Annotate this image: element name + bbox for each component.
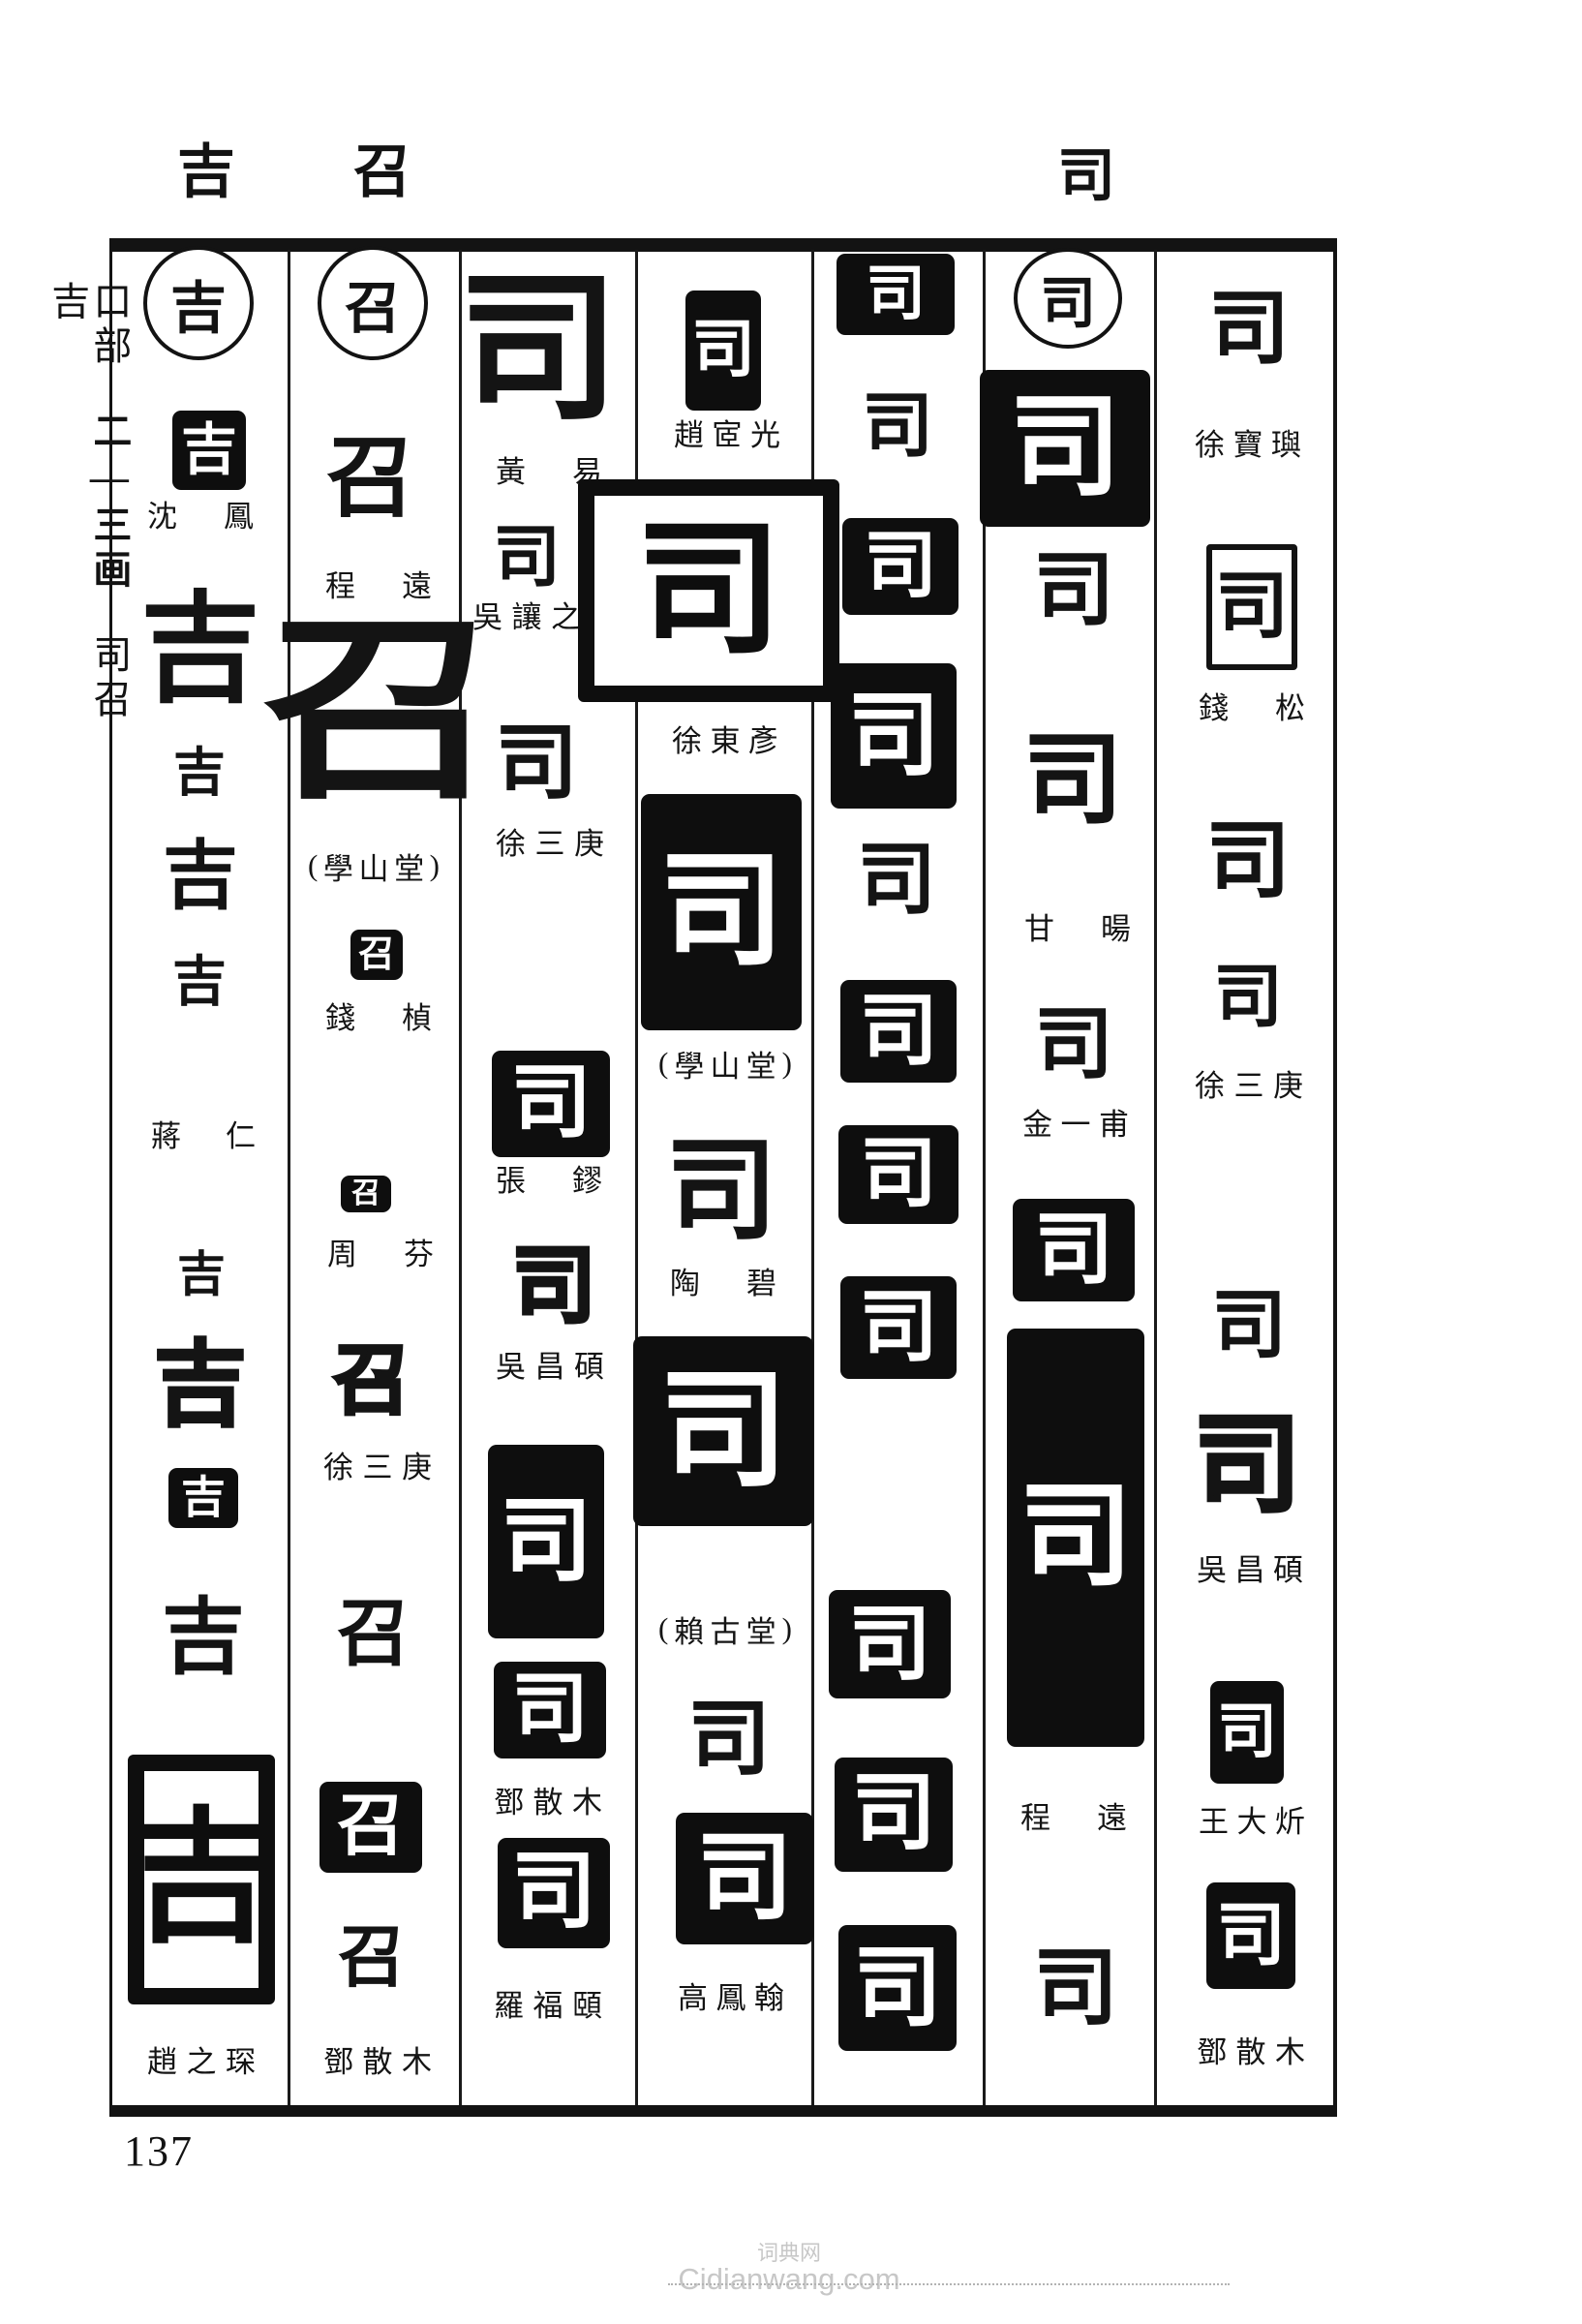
artist-name-char: 趙 <box>147 2037 177 2081</box>
seal-impression: 司 <box>1181 1400 1313 1532</box>
artist-name-char: 鳳 <box>716 1973 746 2017</box>
artist-name-char: 琛 <box>226 2037 256 2081</box>
column-border <box>1154 250 1157 2105</box>
artist-name-label: (學山堂) <box>658 1046 792 1081</box>
artist-name-char: 一 <box>1061 1100 1091 1144</box>
artist-name-char: 福 <box>533 1981 563 2025</box>
seal-impression: 司 <box>494 1662 606 1758</box>
artist-name-char: 甫 <box>1099 1100 1129 1144</box>
artist-name-char: 鏐 <box>572 1156 602 1200</box>
artist-name-char: 鳳 <box>224 492 254 535</box>
artist-name-char: 錢 <box>325 994 355 1037</box>
artist-name-label: 高鳳翰 <box>678 1977 784 2012</box>
seal-impression: 司 <box>443 254 633 447</box>
headword-marker: 召 <box>318 246 428 360</box>
artist-name-char: 古 <box>710 1607 740 1651</box>
seal-impression: 吉 <box>145 953 254 1013</box>
watermark: 词典网 Cidianwang.com <box>678 2243 899 2296</box>
artist-name-char: 大 <box>1237 1797 1267 1841</box>
page-header-character-zhao: 召 <box>353 143 411 201</box>
watermark-site-url: Cidianwang.com <box>678 2264 899 2296</box>
artist-name-char: 徐 <box>1195 420 1225 464</box>
watermark-site-name: 词典网 <box>678 2243 899 2264</box>
artist-name-label: 吳昌碩 <box>496 1346 604 1381</box>
seal-impression: 吉 <box>139 835 261 918</box>
artist-name-char: 碩 <box>574 1342 604 1386</box>
artist-name-label: 張鏐 <box>496 1160 602 1195</box>
artist-name-label: 鄧散木 <box>323 2041 432 2076</box>
artist-name-char: ) <box>782 1046 792 1081</box>
seal-impression: 司 <box>633 1336 813 1526</box>
seal-impression: 司 <box>641 794 802 1030</box>
seal-impression: 司 <box>840 980 957 1083</box>
artist-name-label: 甘暘 <box>1024 908 1131 943</box>
artist-name-label: 王大炘 <box>1199 1801 1305 1836</box>
seal-impression: 司 <box>1206 544 1297 670</box>
artist-name-char: 甘 <box>1024 904 1054 948</box>
artist-name-char: 蔣 <box>151 1112 181 1155</box>
seal-impression: 司 <box>1017 666 1129 897</box>
artist-name-char: 周 <box>327 1230 357 1273</box>
seal-impression: 司 <box>1013 1199 1135 1301</box>
artist-name-label: 金一甫 <box>1022 1104 1129 1139</box>
seal-impression: 召 <box>350 930 403 980</box>
artist-name-char: 木 <box>402 2037 432 2081</box>
artist-name-char: 吳 <box>1197 1545 1227 1589</box>
artist-name-label: 徐三庚 <box>323 1447 432 1482</box>
seal-impression: 司 <box>829 1590 951 1698</box>
margin-radical: 口部 <box>87 281 131 370</box>
artist-name-char: 學 <box>323 844 353 888</box>
artist-name-char: 堂 <box>394 844 424 888</box>
artist-name-char: 頤 <box>572 1981 602 2025</box>
artist-name-char: 趙 <box>674 411 704 454</box>
artist-name-char: 光 <box>750 411 780 454</box>
artist-name-char: 木 <box>572 1778 602 1821</box>
artist-name-label: 周芬 <box>327 1234 434 1269</box>
artist-name-char: ) <box>430 848 440 883</box>
seal-impression: 司 <box>840 1276 957 1379</box>
seal-impression: 吉 <box>134 1334 267 1437</box>
seal-impression: 司 <box>835 1758 953 1872</box>
seal-impression: 司 <box>837 254 955 335</box>
artist-name-char: 之 <box>187 2037 217 2081</box>
seal-impression: 司 <box>1212 949 1284 1046</box>
page: 吉 召 司 口部二—三画司召吉 137 词典网 Cidianwang.com 吉… <box>0 0 1582 2324</box>
artist-name-char: 王 <box>1199 1797 1229 1841</box>
artist-name-char: 暘 <box>1101 904 1131 948</box>
artist-name-label: 程遠 <box>1020 1797 1127 1832</box>
seal-impression: 召 <box>333 405 409 552</box>
artist-name-char: 散 <box>533 1778 563 1821</box>
artist-name-char: 高 <box>678 1973 708 2017</box>
artist-name-char: 宧 <box>713 411 743 454</box>
artist-name-char: 沈 <box>147 492 177 535</box>
seal-impression: 司 <box>637 1131 806 1253</box>
artist-name-char: 徐 <box>323 1443 353 1486</box>
seal-impression: 司 <box>682 1693 776 1786</box>
artist-name-char: 徐 <box>672 717 702 760</box>
artist-name-char: 庚 <box>1273 1061 1303 1105</box>
artist-name-label: 錢松 <box>1199 688 1305 722</box>
artist-name-char: 山 <box>710 1042 740 1086</box>
artist-name-char: 張 <box>496 1156 526 1200</box>
artist-name-label: 吳昌碩 <box>1197 1549 1303 1584</box>
seal-impression: 召 <box>341 1547 407 1722</box>
artist-name-label: 趙之琛 <box>147 2041 256 2076</box>
artist-name-label: 徐東彥 <box>672 720 778 755</box>
artist-name-label: 徐寶璵 <box>1195 424 1301 459</box>
artist-name-char: 楨 <box>402 994 432 1037</box>
artist-name-char: 彥 <box>748 717 778 760</box>
artist-name-char: 錢 <box>1199 684 1229 727</box>
seal-impression: 吉 <box>128 1755 275 2004</box>
seal-impression: 司 <box>1210 1681 1284 1784</box>
seal-impression: 司 <box>676 1813 813 1944</box>
artist-name-char: 松 <box>1275 684 1305 727</box>
seal-impression: 司 <box>1206 1282 1292 1369</box>
artist-name-char: 木 <box>1275 2028 1305 2071</box>
column-border <box>459 250 462 2105</box>
artist-name-char: 堂 <box>746 1042 776 1086</box>
artist-name-label: 徐三庚 <box>1195 1065 1303 1100</box>
seal-impression: 司 <box>838 1125 958 1224</box>
artist-name-char: 璵 <box>1271 420 1301 464</box>
seal-impression: 召 <box>226 593 537 833</box>
artist-name-char: 三 <box>535 819 565 863</box>
seal-impression: 司 <box>1007 1329 1144 1747</box>
artist-name-char: 翰 <box>754 1973 784 2017</box>
headword-marker: 司 <box>1014 248 1122 349</box>
scan-noise-artifact <box>668 2283 1230 2287</box>
artist-name-char: 庚 <box>574 819 604 863</box>
artist-name-char: 散 <box>1236 2028 1266 2071</box>
seal-impression: 司 <box>498 1239 610 1336</box>
artist-name-char: 徐 <box>1195 1061 1225 1105</box>
artist-name-label: (賴古堂) <box>658 1611 792 1646</box>
artist-name-char: 芬 <box>404 1230 434 1273</box>
seal-impression: 司 <box>860 385 935 469</box>
seal-impression: 召 <box>327 1340 416 1423</box>
seal-impression: 召 <box>319 1782 422 1873</box>
artist-name-char: 三 <box>363 1443 393 1486</box>
artist-name-char: 仁 <box>226 1112 256 1155</box>
artist-name-char: 東 <box>711 717 741 760</box>
artist-name-char: 金 <box>1022 1100 1052 1144</box>
artist-name-char: 黃 <box>496 447 526 491</box>
artist-name-label: 鄧散木 <box>494 1782 602 1817</box>
artist-name-char: 堂 <box>746 1607 776 1651</box>
seal-impression: 司 <box>578 479 839 702</box>
artist-name-label: 羅福頤 <box>494 1985 602 2020</box>
artist-name-char: 昌 <box>1235 1545 1265 1589</box>
artist-name-char: 遠 <box>1097 1793 1127 1837</box>
page-header-character-si: 司 <box>1057 147 1115 205</box>
seal-impression: 司 <box>831 663 957 809</box>
seal-impression: 司 <box>1024 546 1123 637</box>
seal-impression: 司 <box>838 1925 957 2051</box>
artist-name-char: 昌 <box>535 1342 565 1386</box>
seal-impression: 吉 <box>159 1559 248 1716</box>
artist-name-char: 鄧 <box>494 1778 524 1821</box>
seal-impression: 司 <box>492 1051 610 1157</box>
page-number: 137 <box>124 2126 194 2176</box>
artist-name-label: 錢楨 <box>325 997 432 1032</box>
seal-impression: 司 <box>1015 1001 1133 1088</box>
margin-section-label: 口部二—三画司召吉 <box>46 281 130 746</box>
artist-name-char: ( <box>308 848 318 883</box>
artist-name-char: 炘 <box>1275 1797 1305 1841</box>
seal-impression: 司 <box>1204 260 1293 401</box>
seal-impression: 吉 <box>168 1468 238 1528</box>
artist-name-char: 寶 <box>1233 420 1263 464</box>
artist-name-label: (學山堂) <box>308 848 440 883</box>
seal-impression: 司 <box>1028 1921 1123 2059</box>
artist-name-char: 陶 <box>670 1259 700 1302</box>
artist-name-label: 沈鳳 <box>147 496 254 531</box>
artist-name-char: 吳 <box>496 1342 526 1386</box>
artist-name-char: 程 <box>1020 1793 1050 1837</box>
seal-impression: 召 <box>337 1917 407 2001</box>
seal-impression: 司 <box>463 521 591 596</box>
seal-impression: 司 <box>1206 1882 1295 1989</box>
artist-name-label: 趙宧光 <box>674 414 780 449</box>
seal-impression: 司 <box>842 837 951 924</box>
seal-impression: 司 <box>685 290 761 411</box>
artist-name-char: ) <box>782 1611 792 1646</box>
seal-impression: 司 <box>498 1838 610 1948</box>
artist-name-char: 散 <box>363 2037 393 2081</box>
page-header-character-ji: 吉 <box>177 143 235 201</box>
artist-name-char: 山 <box>358 844 388 888</box>
artist-name-char: 賴 <box>674 1607 704 1651</box>
seal-impression: 司 <box>842 518 958 615</box>
artist-name-label: 陶碧 <box>670 1263 776 1298</box>
artist-name-char: 三 <box>1234 1061 1264 1105</box>
artist-name-char: 羅 <box>494 1981 524 2025</box>
seal-impression: 司 <box>1201 810 1295 916</box>
artist-name-char: 鄧 <box>1197 2028 1227 2071</box>
seal-impression: 司 <box>488 1445 604 1638</box>
artist-name-label: 蔣仁 <box>151 1116 256 1150</box>
headword-marker: 吉 <box>143 246 254 360</box>
artist-name-char: 鄧 <box>323 2037 353 2081</box>
margin-stroke-count: 二—三画 <box>87 411 131 594</box>
seal-impression: 召 <box>341 1176 391 1212</box>
artist-name-char: 之 <box>551 593 581 636</box>
artist-name-char: ( <box>658 1046 668 1081</box>
artist-name-char: 碩 <box>1273 1545 1303 1589</box>
artist-name-char: 庚 <box>402 1443 432 1486</box>
artist-name-char: 碧 <box>746 1259 776 1302</box>
artist-name-char: 學 <box>674 1042 704 1086</box>
column-border <box>983 250 986 2105</box>
seal-impression: 吉 <box>174 1247 228 1301</box>
seal-impression: 司 <box>980 370 1150 527</box>
seal-impression: 吉 <box>172 411 246 490</box>
column-border <box>288 250 290 2105</box>
artist-name-label: 鄧散木 <box>1197 2032 1305 2066</box>
artist-name-char: ( <box>658 1611 668 1646</box>
